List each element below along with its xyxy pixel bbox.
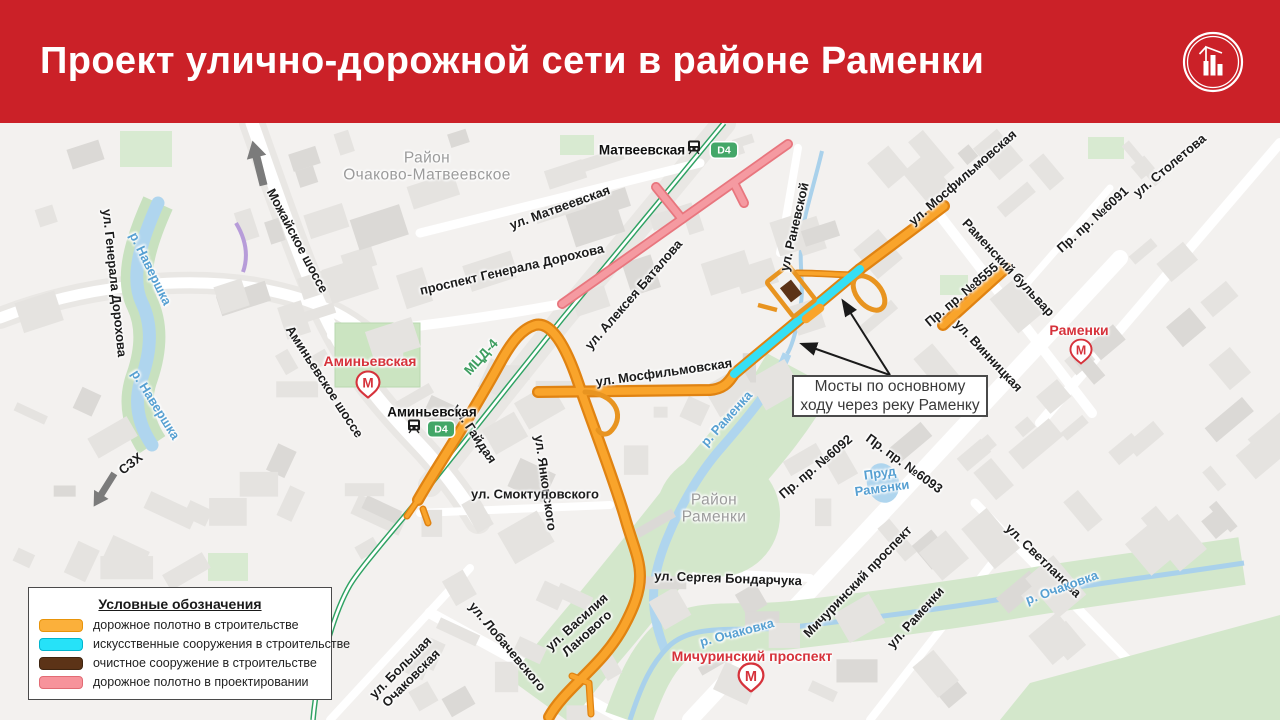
- legend: Условные обозначения дорожное полотно в …: [28, 587, 332, 700]
- legend-swatch: [39, 657, 83, 670]
- developer-logo-icon: [1182, 31, 1244, 93]
- legend-item: дорожное полотно в проектировании: [39, 675, 321, 689]
- legend-item: дорожное полотно в строительстве: [39, 618, 321, 632]
- legend-swatch: [39, 619, 83, 632]
- legend-title: Условные обозначения: [39, 596, 321, 612]
- bridge-callout-line2: ходу через реку Раменку: [800, 396, 979, 415]
- legend-rows: дорожное полотно в строительствеискусств…: [39, 618, 321, 689]
- legend-item-label: искусственные сооружения в строительстве: [93, 637, 350, 651]
- legend-item-label: дорожное полотно в строительстве: [93, 618, 299, 632]
- legend-swatch: [39, 638, 83, 651]
- bridge-callout-line1: Мосты по основному: [815, 377, 966, 396]
- legend-item: очистное сооружение в строительстве: [39, 656, 321, 670]
- legend-item: искусственные сооружения в строительстве: [39, 637, 321, 651]
- infographic-page: Проект улично-дорожной сети в районе Рам…: [0, 0, 1280, 720]
- legend-item-label: дорожное полотно в проектировании: [93, 675, 309, 689]
- legend-swatch: [39, 676, 83, 689]
- map-canvas[interactable]: Район Очаково-МатвеевскоеРайон РаменкиМо…: [0, 123, 1280, 720]
- legend-item-label: очистное сооружение в строительстве: [93, 656, 317, 670]
- bridge-callout: Мосты по основному ходу через реку Рамен…: [792, 375, 988, 417]
- header: Проект улично-дорожной сети в районе Рам…: [0, 0, 1280, 123]
- page-title: Проект улично-дорожной сети в районе Рам…: [40, 40, 984, 83]
